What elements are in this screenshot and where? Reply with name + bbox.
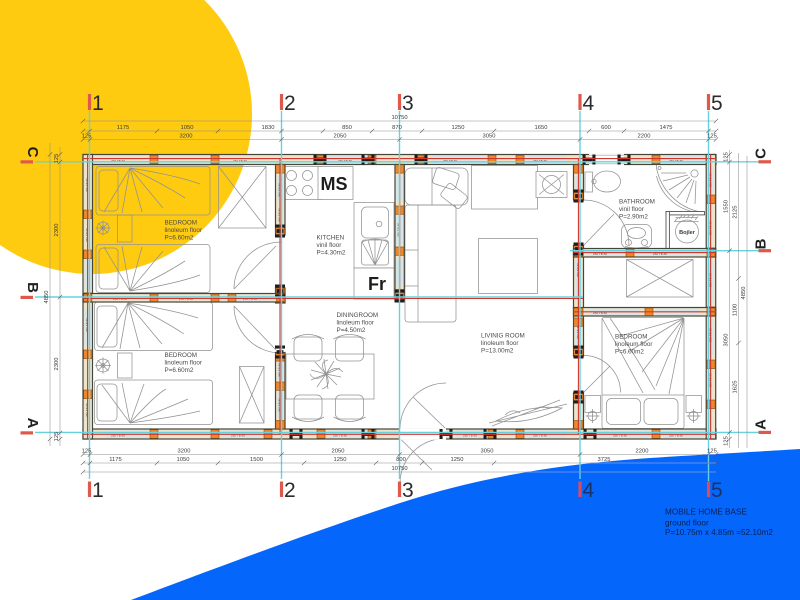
svg-text:10750: 10750 [391, 466, 407, 472]
svg-text:2: 2 [284, 92, 296, 115]
svg-text:1: 1 [92, 92, 104, 115]
svg-text:250 TB 80: 250 TB 80 [277, 208, 281, 222]
svg-text:125: 125 [724, 152, 730, 162]
svg-text:P=10.75m x 4.85m =52.10m2: P=10.75m x 4.85m =52.10m2 [665, 528, 773, 537]
svg-text:800: 800 [396, 457, 406, 463]
svg-text:3050: 3050 [483, 133, 496, 139]
svg-text:2: 2 [284, 479, 296, 502]
svg-text:B: B [753, 238, 770, 249]
svg-text:1175: 1175 [109, 457, 121, 463]
svg-text:A: A [24, 418, 41, 429]
svg-text:2300: 2300 [54, 224, 60, 237]
svg-text:P=4.50m2: P=4.50m2 [337, 327, 366, 334]
svg-text:Bojler: Bojler [679, 230, 696, 236]
svg-text:ground floor: ground floor [665, 519, 709, 528]
svg-text:2300: 2300 [54, 358, 60, 371]
svg-text:5: 5 [711, 92, 723, 115]
svg-text:2200: 2200 [638, 133, 651, 139]
svg-text:1250: 1250 [334, 457, 347, 463]
svg-text:P=2.90m2: P=2.90m2 [619, 214, 648, 221]
svg-text:600: 600 [601, 125, 611, 131]
svg-text:BEDROOM: BEDROOM [165, 220, 198, 227]
svg-text:P=6.60m2: P=6.60m2 [165, 235, 194, 242]
svg-text:P=6.00m2: P=6.00m2 [615, 349, 644, 356]
svg-text:1050: 1050 [181, 125, 194, 131]
svg-text:linoleum floor: linoleum floor [481, 340, 518, 347]
svg-text:3725: 3725 [598, 457, 611, 463]
svg-text:3: 3 [402, 479, 414, 502]
svg-text:1500: 1500 [250, 457, 263, 463]
svg-text:125: 125 [707, 133, 717, 139]
svg-text:10750: 10750 [391, 115, 407, 121]
svg-text:850: 850 [342, 125, 352, 131]
svg-text:LIVINIG ROOM: LIVINIG ROOM [481, 333, 525, 340]
svg-text:125: 125 [724, 436, 730, 446]
svg-text:1650: 1650 [535, 125, 548, 131]
svg-text:BATHROOM: BATHROOM [619, 199, 655, 206]
svg-text:linoleum floor: linoleum floor [165, 227, 202, 234]
svg-text:linoleum floor: linoleum floor [615, 341, 652, 348]
svg-text:1550: 1550 [724, 200, 730, 213]
svg-text:3050: 3050 [724, 334, 730, 347]
svg-text:1625: 1625 [733, 381, 739, 394]
svg-text:4850: 4850 [741, 287, 747, 300]
svg-text:3200: 3200 [180, 133, 193, 139]
svg-text:KITCHEN: KITCHEN [317, 235, 345, 242]
svg-text:P=13.00m2: P=13.00m2 [481, 348, 514, 355]
svg-text:1250: 1250 [451, 457, 464, 463]
svg-text:3: 3 [402, 92, 414, 115]
svg-text:250 TB 80: 250 TB 80 [277, 363, 281, 377]
svg-text:linoleum floor: linoleum floor [165, 360, 202, 367]
svg-text:3200: 3200 [178, 448, 191, 454]
svg-text:P=4.30m2: P=4.30m2 [317, 250, 346, 257]
svg-text:1250: 1250 [452, 125, 465, 131]
svg-text:A: A [753, 419, 770, 430]
svg-text:DININGROOM: DININGROOM [337, 312, 379, 319]
svg-text:1475: 1475 [660, 125, 673, 131]
svg-text:vinil floor: vinil floor [619, 206, 644, 213]
svg-text:P=6.60m2: P=6.60m2 [165, 367, 194, 374]
svg-text:3050: 3050 [481, 448, 494, 454]
svg-text:1100: 1100 [733, 304, 739, 316]
svg-text:125: 125 [82, 448, 92, 454]
svg-text:linoleum floor: linoleum floor [337, 320, 374, 327]
svg-text:870: 870 [392, 125, 402, 131]
svg-text:250 TB 80: 250 TB 80 [576, 263, 580, 277]
svg-text:1: 1 [92, 479, 104, 502]
svg-text:BEDROOM: BEDROOM [165, 352, 198, 359]
svg-text:125: 125 [54, 432, 60, 442]
svg-text:B: B [24, 282, 41, 293]
svg-text:C: C [753, 148, 770, 159]
svg-text:125: 125 [54, 154, 60, 164]
svg-text:vinil floor: vinil floor [317, 242, 342, 249]
svg-text:MS: MS [321, 174, 348, 194]
svg-text:4: 4 [583, 479, 595, 502]
svg-text:Fr: Fr [368, 274, 386, 294]
svg-text:BEDROOM: BEDROOM [615, 334, 648, 341]
svg-text:MOBILE HOME BASE: MOBILE HOME BASE [665, 508, 747, 517]
svg-text:250 TB 80: 250 TB 80 [277, 183, 281, 197]
svg-text:1830: 1830 [262, 125, 275, 131]
svg-text:5: 5 [711, 479, 723, 502]
svg-text:250 TB 80: 250 TB 80 [277, 398, 281, 412]
svg-text:2200: 2200 [636, 448, 649, 454]
svg-text:2050: 2050 [334, 133, 347, 139]
svg-text:1175: 1175 [117, 125, 129, 131]
svg-text:4: 4 [583, 92, 595, 115]
svg-text:1050: 1050 [177, 457, 190, 463]
svg-text:4850: 4850 [44, 291, 50, 304]
svg-text:250 TB 80: 250 TB 80 [576, 325, 580, 339]
svg-text:2050: 2050 [332, 448, 345, 454]
svg-text:125: 125 [82, 133, 92, 139]
svg-text:2125: 2125 [733, 206, 739, 219]
svg-text:C: C [24, 147, 41, 158]
svg-text:125: 125 [707, 448, 717, 454]
